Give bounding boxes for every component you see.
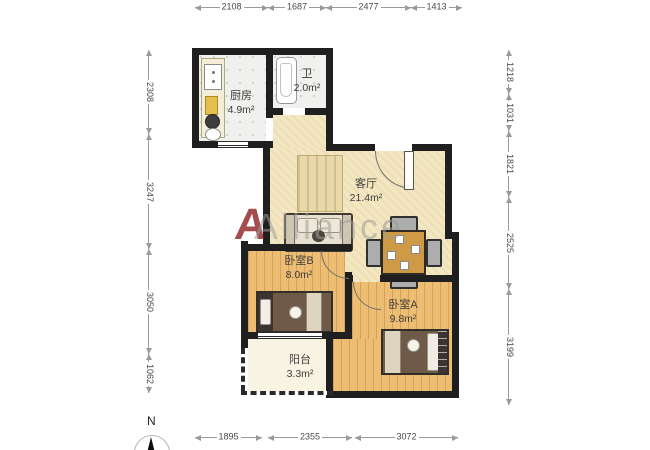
dim-top-3-value: 2477	[356, 3, 380, 13]
dim-left-4-value: 1062	[144, 361, 154, 385]
dim-top-4-value: 1413	[424, 3, 448, 13]
dim-top-1: 2108	[195, 7, 268, 8]
bedroom-b-name: 卧室B	[284, 255, 313, 269]
bed-a-blanket	[385, 331, 401, 373]
dim-bottom-1-value: 1895	[216, 433, 240, 443]
wall-right-upper	[445, 144, 452, 239]
bathroom-area: 2.0m²	[294, 82, 321, 95]
bed-a-round-cushion	[407, 339, 420, 352]
wall-top	[192, 48, 333, 55]
wall-bedroom-a-top-right	[380, 275, 452, 282]
floor-plan: A Alliance 厨房 4.9m² 卫 2.0m² 客厅 21.4m² 卧室…	[0, 0, 650, 450]
dim-right-4-value: 2525	[504, 231, 514, 255]
dim-right-1: 1218	[508, 50, 509, 94]
bedroom-b-area: 8.0m²	[284, 269, 313, 282]
kitchen-area: 4.9m²	[228, 104, 255, 117]
dim-left-2: 3247	[148, 134, 149, 249]
balcony-rail-bottom	[241, 391, 333, 395]
wall-entry-top-left	[326, 144, 375, 151]
bed-bedroom-a	[381, 329, 449, 375]
wall-bedroom-b-bottom-right	[322, 332, 352, 339]
dim-right-4: 2525	[508, 197, 509, 289]
entry-door-leaf	[404, 151, 414, 190]
dim-bottom-3: 3072	[355, 437, 458, 438]
sink-faucet-dot	[212, 80, 215, 83]
sink-drain-dot	[212, 71, 215, 74]
dim-top-2: 1687	[268, 7, 326, 8]
pot-icon	[205, 128, 221, 141]
bedroom-a-area: 9.8m²	[388, 313, 417, 326]
hall-floor	[273, 115, 326, 148]
wall-bedroom-b-bottom-left	[241, 332, 258, 339]
dim-bottom-1: 1895	[195, 437, 262, 438]
bedroom-a-label: 卧室A 9.8m²	[388, 299, 417, 326]
dim-bottom-2: 2355	[268, 437, 352, 438]
dim-top-1-value: 2108	[219, 3, 243, 13]
sink-icon	[204, 64, 222, 90]
bed-b-blanket	[306, 293, 322, 331]
balcony-label: 阳台 3.3m²	[287, 354, 314, 381]
compass-needle-icon	[145, 437, 157, 450]
dining-chair-right	[426, 239, 442, 267]
dim-left-3-value: 3050	[144, 289, 154, 313]
dim-right-2: 1031	[508, 94, 509, 131]
balcony-name: 阳台	[287, 354, 314, 368]
balcony-area: 3.3m²	[287, 368, 314, 381]
dim-top-4: 1413	[411, 7, 462, 8]
bed-b-pillow	[260, 299, 271, 325]
dim-top-2-value: 1687	[285, 3, 309, 13]
wall-bedroom-a-right	[452, 232, 459, 398]
dim-right-3: 1821	[508, 131, 509, 197]
dim-left-1-value: 2308	[144, 80, 154, 104]
dim-right-5-value: 3199	[504, 335, 514, 359]
stove-icon	[205, 114, 220, 129]
kitchen-name: 厨房	[228, 90, 255, 104]
dim-left-2-value: 3247	[144, 179, 154, 203]
watermark-text: Alliance	[254, 206, 404, 248]
wall-kitchen-left	[192, 48, 199, 148]
dim-right-1-value: 1218	[504, 60, 514, 84]
dim-right-3-value: 1821	[504, 152, 514, 176]
dim-left-1: 2308	[148, 50, 149, 134]
rug	[297, 155, 343, 212]
bedroom-a-name: 卧室A	[388, 299, 417, 313]
wall-bedroom-a-bottom	[326, 391, 459, 398]
bed-a-headboard	[438, 331, 447, 373]
bathroom-label: 卫 2.0m²	[294, 68, 321, 95]
kitchen-window	[218, 141, 248, 148]
dim-bottom-2-value: 2355	[298, 433, 322, 443]
wall-bath-bottom-left	[266, 108, 283, 115]
bed-b-round-cushion	[289, 306, 302, 319]
wall-balcony-right	[326, 332, 333, 398]
compass-north-label: N	[147, 414, 156, 428]
kitchen-label: 厨房 4.9m²	[228, 90, 255, 117]
plate-icon	[400, 261, 409, 270]
dim-right-2-value: 1031	[504, 100, 514, 124]
wall-bedroom-b-right	[345, 272, 352, 339]
bed-bedroom-b	[256, 291, 333, 333]
plate-icon	[387, 251, 396, 260]
bedroom-b-window	[258, 332, 322, 339]
wall-bath-right	[326, 48, 333, 151]
bathtub-inner	[280, 63, 292, 97]
balcony-rail-left	[241, 348, 245, 391]
wall-kitchen-bottom-left	[192, 141, 218, 148]
cutting-board-icon	[205, 96, 218, 115]
living-room-name: 客厅	[350, 178, 383, 192]
dim-bottom-3-value: 3072	[394, 433, 418, 443]
bathroom-name: 卫	[294, 68, 321, 82]
living-room-area: 21.4m²	[350, 192, 383, 205]
dim-right-5: 3199	[508, 289, 509, 405]
bedroom-b-label: 卧室B 8.0m²	[284, 255, 313, 282]
living-room-label: 客厅 21.4m²	[350, 178, 383, 205]
dim-left-4: 1062	[148, 354, 149, 393]
plate-icon	[411, 245, 420, 254]
dim-top-3: 2477	[326, 7, 411, 8]
dim-left-3: 3050	[148, 249, 149, 354]
